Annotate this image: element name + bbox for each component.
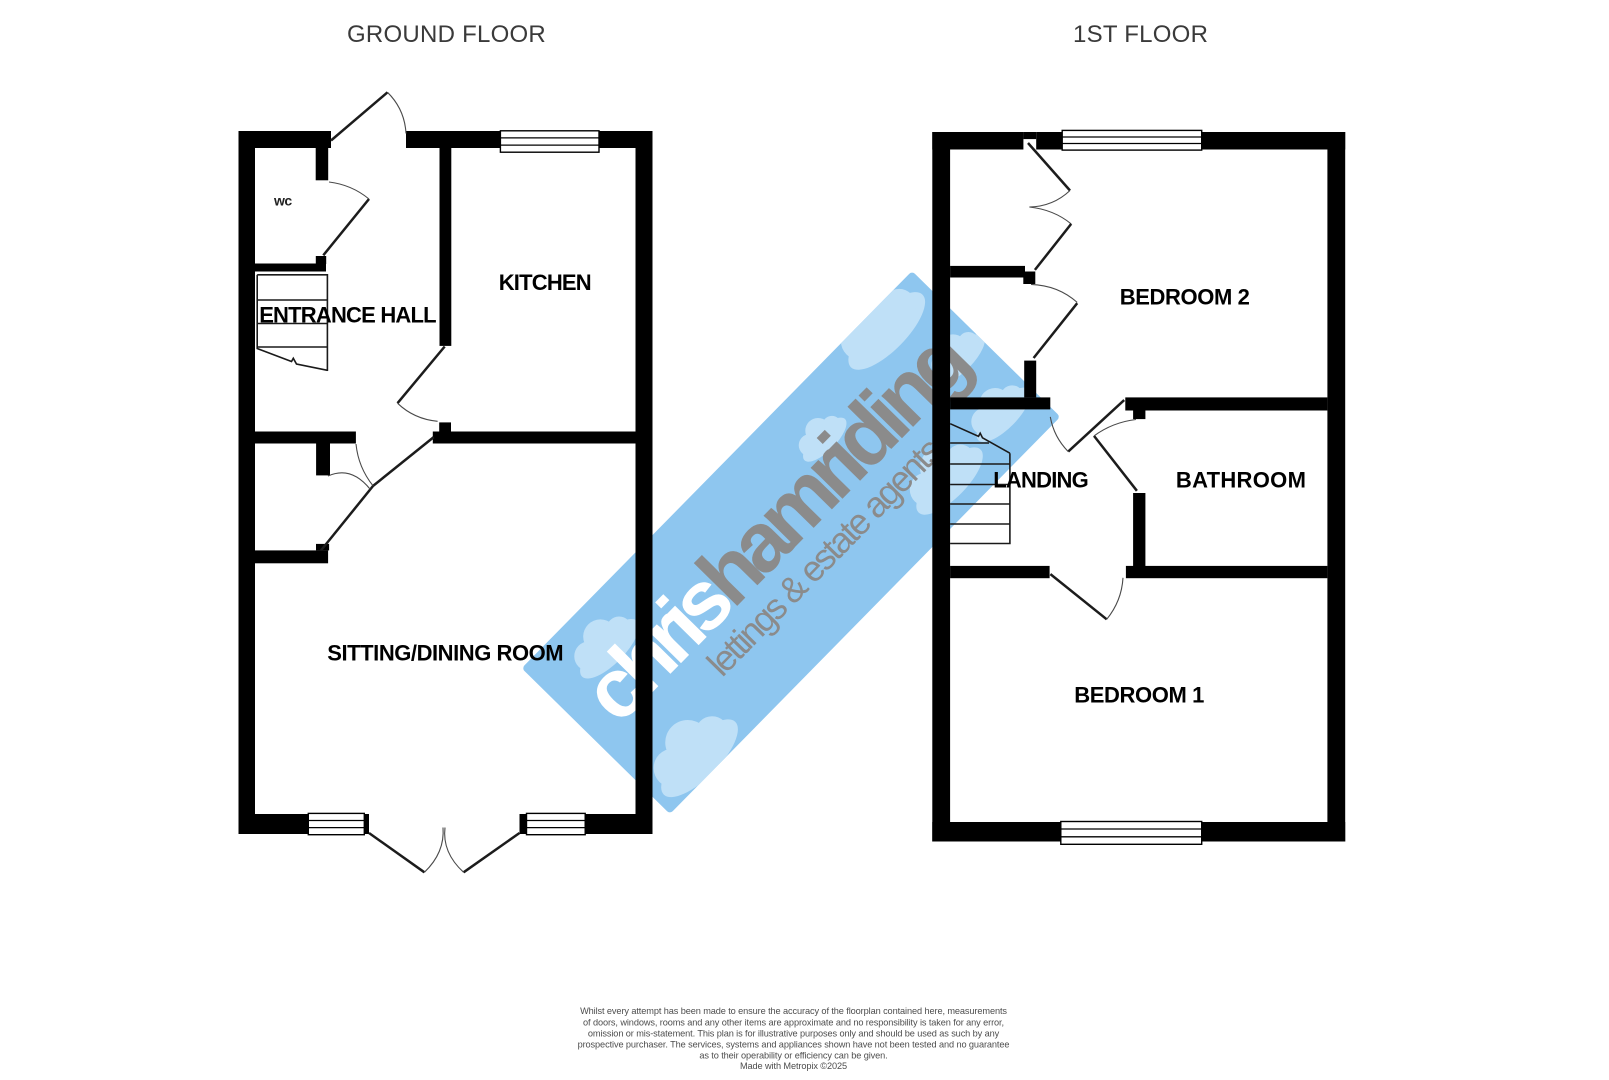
svg-text:as to their operability or eff: as to their operability or efficiency ca… — [699, 1050, 887, 1060]
svg-text:omission or mis-statement. Thi: omission or mis-statement. This plan is … — [588, 1028, 1000, 1038]
svg-text:BEDROOM 1: BEDROOM 1 — [1074, 683, 1204, 708]
svg-text:BATHROOM: BATHROOM — [1176, 468, 1306, 493]
svg-text:Whilst every attempt has been: Whilst every attempt has been made to en… — [580, 1006, 1007, 1016]
svg-text:ENTRANCE HALL: ENTRANCE HALL — [259, 303, 436, 328]
svg-text:KITCHEN: KITCHEN — [499, 270, 591, 295]
svg-text:wc: wc — [273, 193, 292, 209]
svg-text:SITTING/DINING ROOM: SITTING/DINING ROOM — [327, 641, 563, 666]
svg-text:prospective purchaser. The ser: prospective purchaser. The services, sys… — [578, 1039, 1010, 1049]
svg-text:BEDROOM 2: BEDROOM 2 — [1120, 285, 1250, 310]
svg-text:of doors, windows, rooms and a: of doors, windows, rooms and any other i… — [583, 1018, 1004, 1028]
svg-text:GROUND FLOOR: GROUND FLOOR — [347, 21, 546, 48]
svg-text:1ST FLOOR: 1ST FLOOR — [1073, 21, 1208, 48]
svg-text:LANDING: LANDING — [993, 468, 1088, 493]
svg-text:Made with Metropix ©2025: Made with Metropix ©2025 — [740, 1061, 847, 1071]
